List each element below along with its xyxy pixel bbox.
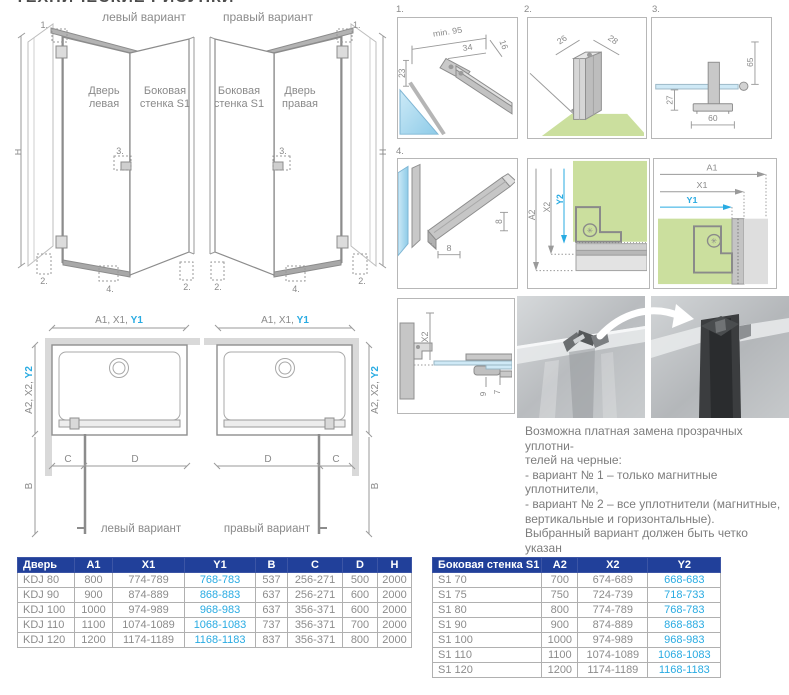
marker-2: 2. [40,276,48,286]
detail-4-bottom-profile: 8 8 [397,158,518,289]
table-row: S1 80800774-789768-783 [433,603,721,618]
table-cell: 1000 [542,633,578,648]
dim-X2: X2 [420,331,430,342]
right-plan-drawing: A1, X1, Y1 A2, X2, Y2 B C D правый вариа… [197,298,389,556]
table-cell: 1200 [542,663,578,678]
dim-min95: min. 95 [432,25,463,39]
table-cell: 768-783 [648,603,721,618]
plan-variant-label: правый вариант [224,523,311,535]
column-header: Y1 [185,558,256,573]
table-cell: 637 [256,603,288,618]
marker-1: 1. [40,20,48,30]
table-cell: 1068-1083 [648,648,721,663]
side-wall-label: Боковая [218,85,260,97]
detail-5-side-wall-plan: ✳ A2 X2 Y2 [527,158,650,289]
note-line: Возможна платная замена прозрачных уплот… [525,424,787,453]
column-header: Боковая стенка S1 [433,558,542,573]
table-cell: KDJ 120 [18,633,75,648]
table-cell: 668-683 [648,573,721,588]
table-row: S1 12012001174-11891168-1183 [433,663,721,678]
column-header: X2 [578,558,648,573]
marker-3: 3. [116,146,124,156]
table-cell: 1168-1183 [648,663,721,678]
table-cell: 600 [343,603,378,618]
note-line: вертикальные и горизонтальные). [525,512,787,527]
column-header: Дверь [18,558,75,573]
table-cell: 1100 [542,648,578,663]
replacement-arrow-icon [596,300,696,342]
table-cell: 1068-1083 [185,618,256,633]
dim-23: 23 [398,69,407,78]
table-cell: 356-371 [288,633,343,648]
side-wall-label: стенка S1 [140,98,190,110]
table-cell: 774-789 [113,573,185,588]
detail-7-x2-section: X2 9 7 [397,298,515,414]
column-header: Y2 [648,558,721,573]
plan-variant-label: левый вариант [101,523,182,535]
table-cell: 356-371 [288,618,343,633]
table-row: S1 75750724-739718-733 [433,588,721,603]
table-cell: S1 100 [433,633,542,648]
table-cell: 750 [542,588,578,603]
detail-1-number: 1. [396,4,404,15]
table-cell: 700 [542,573,578,588]
door-dimensions-table: ДверьA1X1Y1BCDHKDJ 80800774-789768-78353… [17,557,412,648]
table-cell: KDJ 90 [18,588,75,603]
table-cell: 2000 [378,618,412,633]
dim-B: B [370,482,381,489]
dim-60: 60 [708,113,718,123]
dim-Y2: Y2 [555,194,565,205]
door-label: Дверь [88,85,119,97]
dim-A1: A1 [706,163,717,173]
detail-2-corner-profile: 26 28 [527,17,647,139]
dim-X2: X2 [542,202,552,213]
page: ТЕХНИЧЕСКИЕ РИСУНКИ левый вариант правый… [0,0,789,695]
plan-top-dims: A1, X1, Y1 [95,315,143,326]
table-cell: 800 [343,633,378,648]
table-row: S1 90900874-889868-883 [433,618,721,633]
table-cell: 900 [75,588,113,603]
note-line: телей на черные: [525,453,787,468]
table-cell: 2000 [378,603,412,618]
table-cell: 774-789 [578,603,648,618]
table-cell: 1168-1183 [185,633,256,648]
dim-C: C [64,454,71,465]
dim-C: C [332,454,339,465]
page-title: ТЕХНИЧЕСКИЕ РИСУНКИ [15,0,234,7]
column-header: C [288,558,343,573]
side-wall-dimensions-table: Боковая стенка S1A2X2Y2S1 70700674-68966… [432,557,721,678]
table-row: S1 1001000974-989968-983 [433,633,721,648]
table-cell: 1174-1189 [578,663,648,678]
column-header: A1 [75,558,113,573]
table-cell: 874-889 [113,588,185,603]
table-cell: 2000 [378,573,412,588]
table-cell: S1 75 [433,588,542,603]
marker-4: 4. [106,284,114,294]
table-cell: S1 110 [433,648,542,663]
table-cell: 800 [542,603,578,618]
table-cell: 256-271 [288,588,343,603]
table-cell: 1000 [75,603,113,618]
table-cell: 974-989 [113,603,185,618]
table-cell: KDJ 80 [18,573,75,588]
note-line: - вариант № 2 – все уплотнители (магнитн… [525,497,787,512]
table-cell: 600 [343,588,378,603]
height-dim-label: H [15,149,23,156]
table-cell: 1200 [75,633,113,648]
table-cell: 1174-1189 [113,633,185,648]
dim-65: 65 [745,57,755,67]
table-cell: 724-739 [578,588,648,603]
detail-4-number: 4. [396,146,404,157]
marker-2: 2. [214,282,222,292]
table-row: KDJ 80800774-789768-783537256-2715002000 [18,573,412,588]
plan-side-dims: A2, X2, Y2 [370,366,381,414]
detail-3-handle-section: 65 27 60 [651,17,772,139]
table-cell: 1074-1089 [113,618,185,633]
table-cell: 537 [256,573,288,588]
dim-28: 28 [606,33,620,46]
table-row: S1 70700674-689668-683 [433,573,721,588]
marker-3: 3. [279,146,287,156]
marker-2: 2. [183,282,191,292]
door-label: Дверь [284,85,315,97]
detail-3-number: 3. [652,4,660,15]
table-row: S1 11011001074-10891068-1083 [433,648,721,663]
asterisk-marker: ✳ [587,226,594,235]
dim-Y1: Y1 [686,195,697,205]
table-cell: 256-271 [288,573,343,588]
left-enclosure-drawing: H 1. 3. 2. 2. 4. Дверь левая Боковая сте… [15,16,200,294]
table-cell: 1074-1089 [578,648,648,663]
table-cell: 2000 [378,633,412,648]
table-row: KDJ 12012001174-11891168-1183837356-3718… [18,633,412,648]
dim-26: 26 [555,33,569,46]
table-cell: 500 [343,573,378,588]
seal-replacement-note: Возможна платная замена прозрачных уплот… [525,424,787,570]
table-row: KDJ 90900874-889868-883637256-2716002000 [18,588,412,603]
table-cell: 800 [75,573,113,588]
dim-27: 27 [665,95,675,105]
left-plan-drawing: A1, X1, Y1 A2, X2, Y2 B C D левый вариан… [15,298,200,556]
side-wall-label: Боковая [144,85,186,97]
note-line: - вариант № 1 – только магнитные уплотни… [525,468,787,497]
table-cell: 868-883 [648,618,721,633]
note-line: Выбранный вариант должен быть четко указ… [525,526,787,555]
table-cell: 356-371 [288,603,343,618]
table-cell: 2000 [378,588,412,603]
table-cell: S1 120 [433,663,542,678]
dim-16: 16 [497,39,510,51]
table-cell: 968-983 [185,603,256,618]
marker-1: 1. [353,20,361,30]
table-row: KDJ 1001000974-989968-983637356-37160020… [18,603,412,618]
detail-2-number: 2. [524,4,532,15]
plan-side-dims: A2, X2, Y2 [24,366,35,414]
column-header: H [378,558,412,573]
marker-2: 2. [358,276,366,286]
table-cell: 837 [256,633,288,648]
table-cell: 900 [542,618,578,633]
table-cell: 637 [256,588,288,603]
table-cell: 868-883 [185,588,256,603]
dim-8: 8 [446,243,451,253]
column-header: D [343,558,378,573]
table-cell: S1 90 [433,618,542,633]
table-cell: 768-783 [185,573,256,588]
asterisk-marker: ✳ [711,237,718,246]
dim-7: 7 [493,389,502,394]
dim-8: 8 [494,219,504,224]
column-header: A2 [542,558,578,573]
column-header: X1 [113,558,185,573]
table-cell: 968-983 [648,633,721,648]
table-cell: 737 [256,618,288,633]
table-cell: 700 [343,618,378,633]
plan-top-dims: A1, X1, Y1 [261,315,309,326]
table-cell: 674-689 [578,573,648,588]
table-cell: S1 70 [433,573,542,588]
table-row: KDJ 11011001074-10891068-1083737356-3717… [18,618,412,633]
right-enclosure-drawing: H 1. 3. 2. 2. 4. Дверь правая Боковая ст… [197,16,389,294]
table-cell: KDJ 100 [18,603,75,618]
dim-D: D [264,454,271,465]
height-dim-label: H [378,149,388,156]
table-cell: KDJ 110 [18,618,75,633]
door-label: левая [89,98,119,110]
dim-A2: A2 [528,209,537,220]
dim-34: 34 [462,42,474,53]
column-header: B [256,558,288,573]
dim-D: D [131,454,138,465]
table-cell: 974-989 [578,633,648,648]
door-label: правая [282,98,318,110]
dim-X1: X1 [696,180,707,190]
detail-1-wall-bracket: min. 95 34 16 23 [397,17,518,139]
dim-B: B [24,482,35,489]
side-wall-label: стенка S1 [214,98,264,110]
dim-9: 9 [479,391,488,396]
detail-6-door-plan: ✳ A1 X1 Y1 [653,158,777,289]
table-cell: S1 80 [433,603,542,618]
marker-4: 4. [292,284,300,294]
table-cell: 1100 [75,618,113,633]
table-cell: 718-733 [648,588,721,603]
table-cell: 874-889 [578,618,648,633]
